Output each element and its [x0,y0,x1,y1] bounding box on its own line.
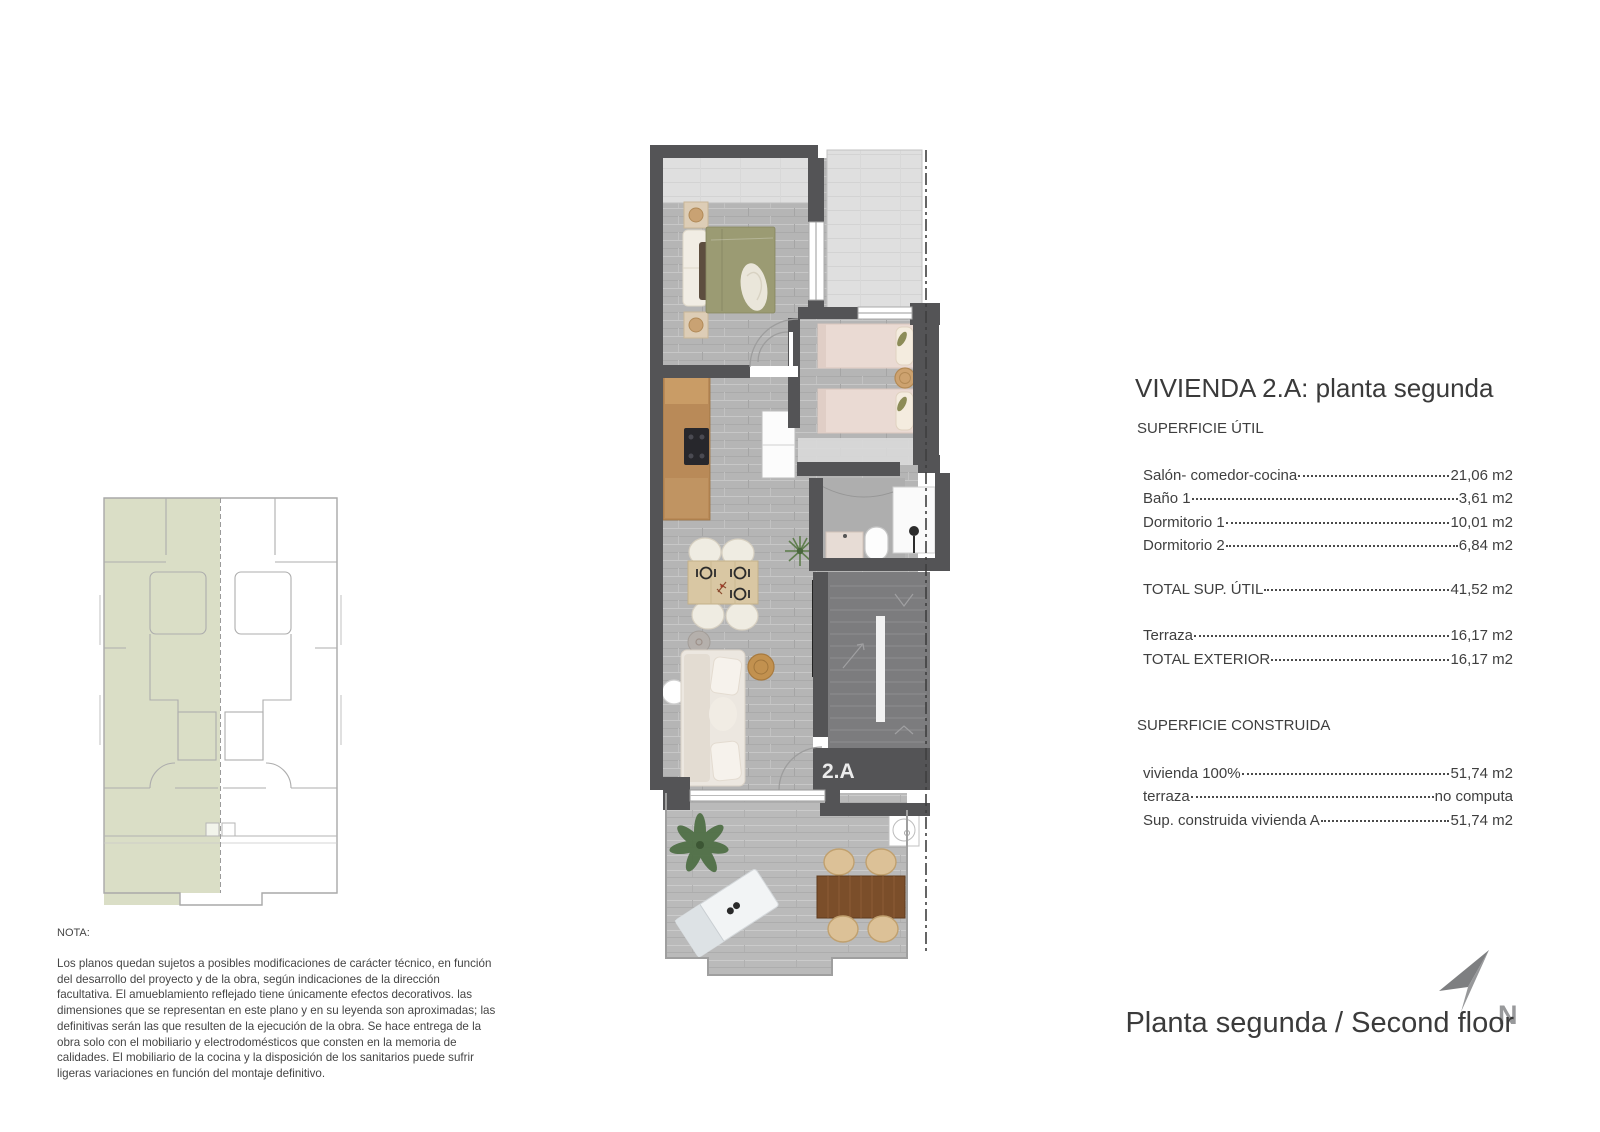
coffee-table [748,654,774,680]
dining-chair [726,602,758,630]
area-row: Terraza16,17 m2 [1143,624,1513,647]
locator-unit-right [223,498,341,788]
area-row: Dormitorio 110,01 m2 [1143,511,1513,534]
outdoor-chair [868,916,898,942]
area-row: Sup. construida vivienda A51,74 m2 [1143,809,1513,832]
locator-plan [95,488,345,913]
stair-handrail [876,616,885,722]
total-row: TOTAL EXTERIOR16,17 m2 [1143,648,1513,671]
area-row: Baño 13,61 m2 [1143,487,1513,510]
floor-plan: 2.A [640,140,970,985]
note-heading: NOTA: [57,926,497,940]
plan-sheet: 2.A VIVIENDA 2.A: planta segunda SUPERFI… [0,0,1600,1132]
sofa [681,650,745,786]
util-heading: SUPERFICIE ÚTIL [1137,420,1513,438]
note-body: Los planos quedan sujetos a posibles mod… [57,956,497,1082]
roof-area [827,150,922,308]
toilet [865,527,888,560]
highlighted-unit-overlay [104,498,220,905]
dining-table [688,561,758,604]
shower-head [909,526,919,536]
surface-panel: VIVIENDA 2.A: planta segunda SUPERFICIE … [1135,372,1513,832]
dining-chair [692,601,724,629]
single-bed [818,324,915,368]
total-row: TOTAL SUP. ÚTIL41,52 m2 [1143,578,1513,601]
bedside-pouf [895,368,915,388]
area-row: Dormitorio 26,84 m2 [1143,534,1513,557]
util-total: TOTAL SUP. ÚTIL41,52 m2 [1135,578,1513,601]
unit-label: 2.A [822,760,855,783]
note-block: NOTA: Los planos quedan sujetos a posibl… [57,926,497,1082]
area-row: terrazano computa [1143,785,1513,808]
outdoor-chair [824,849,854,875]
area-row: Salón- comedor-cocina21,06 m2 [1143,464,1513,487]
bedroom1-wardrobe-zone [663,158,813,203]
cooktop [684,428,709,465]
outdoor-chair [866,849,896,875]
construida-rows: vivienda 100%51,74 m2 terrazano computa … [1135,762,1513,832]
dining-set [688,538,758,630]
outdoor-chair [828,916,858,942]
floor-caption: Planta segunda / Second floor [1125,1006,1514,1040]
bedroom2-closet [798,438,915,465]
single-bed [818,389,915,433]
exterior-rows: Terraza16,17 m2 TOTAL EXTERIOR16,17 m2 [1135,624,1513,671]
util-rows: Salón- comedor-cocina21,06 m2 Baño 13,61… [1135,464,1513,557]
area-row: vivienda 100%51,74 m2 [1143,762,1513,785]
page-title: VIVIENDA 2.A: planta segunda [1135,372,1513,404]
double-bed [683,227,775,313]
construida-heading: SUPERFICIE CONSTRUIDA [1137,717,1513,735]
